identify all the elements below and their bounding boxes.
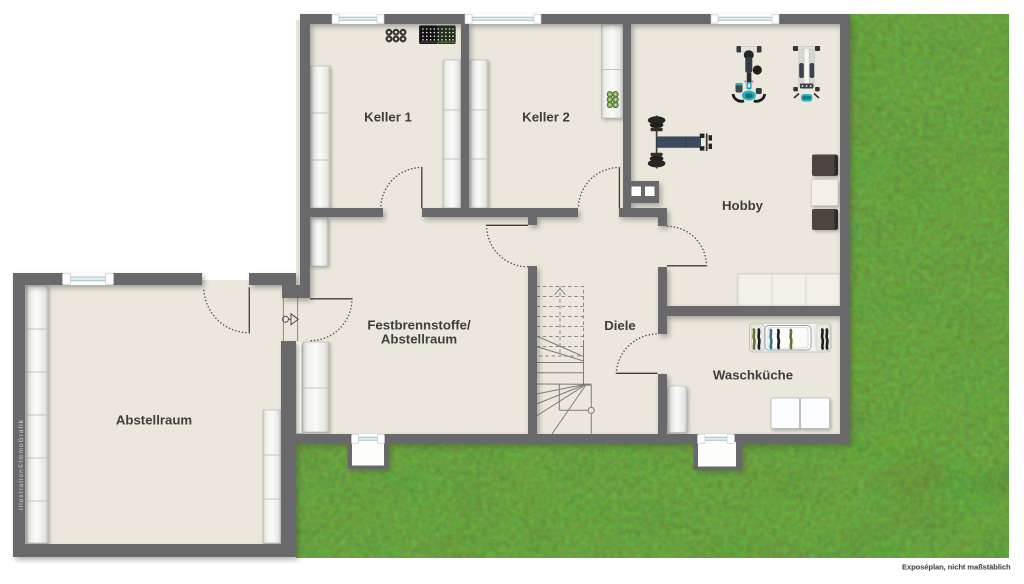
svg-text:Abstellraum: Abstellraum (116, 413, 192, 428)
svg-text:Waschküche: Waschküche (713, 368, 793, 383)
svg-text:Hobby: Hobby (722, 198, 764, 213)
svg-text:Festbrennstoffe/: Festbrennstoffe/ (367, 318, 471, 333)
svg-text:Diele: Diele (604, 318, 636, 333)
svg-text:Keller 1: Keller 1 (364, 110, 412, 125)
svg-text:Exposéplan, nicht maßstäblich: Exposéplan, nicht maßstäblich (902, 563, 1011, 572)
svg-text:Keller 2: Keller 2 (522, 110, 570, 125)
svg-text:Illustration©ImmoGrafik: Illustration©ImmoGrafik (17, 419, 25, 510)
svg-text:Abstellraum: Abstellraum (381, 332, 457, 347)
